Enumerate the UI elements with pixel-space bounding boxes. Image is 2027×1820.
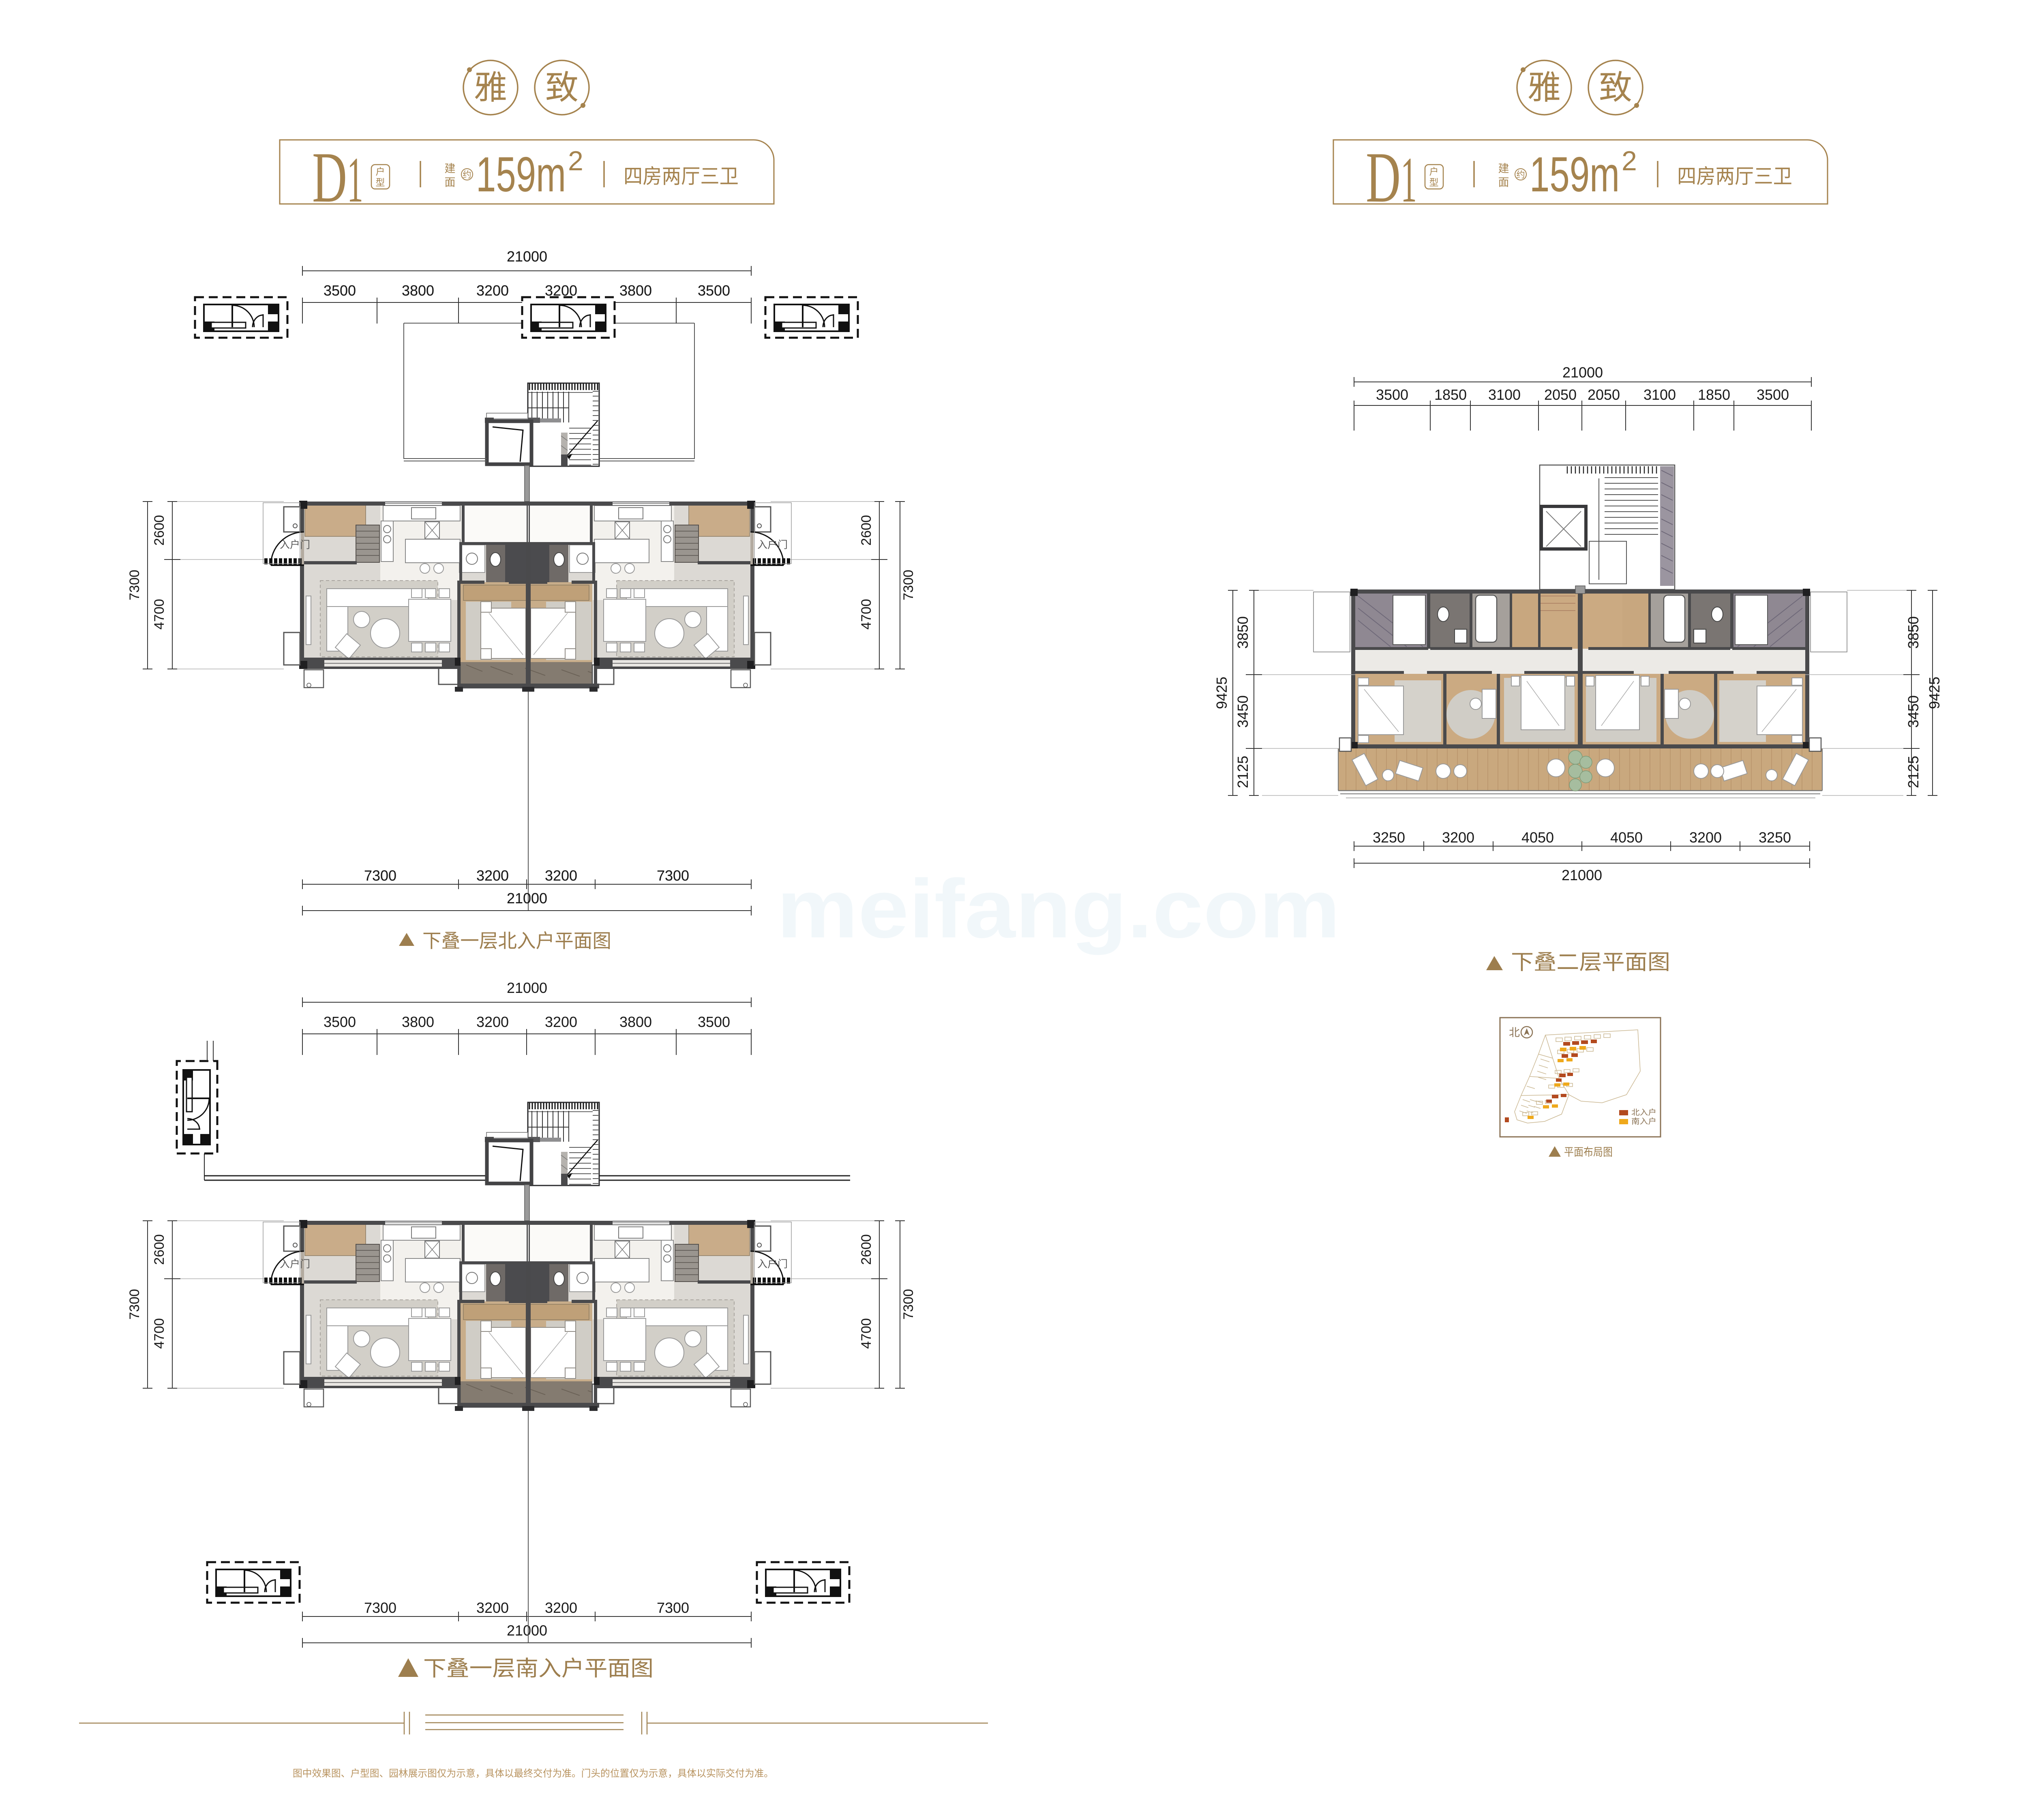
svg-text:入户门: 入户门 — [757, 539, 788, 551]
svg-text:1850: 1850 — [1434, 386, 1467, 403]
svg-text:入户门: 入户门 — [280, 539, 310, 551]
svg-text:3250: 3250 — [1759, 829, 1791, 846]
svg-text:四房两厅三卫: 四房两厅三卫 — [624, 165, 739, 188]
svg-text:159m: 159m — [476, 147, 566, 202]
svg-text:3850: 3850 — [1234, 616, 1251, 649]
svg-text:1850: 1850 — [1698, 386, 1730, 403]
svg-text:21000: 21000 — [1562, 364, 1603, 381]
svg-text:meifang.com: meifang.com — [777, 862, 1340, 955]
svg-text:3200: 3200 — [1689, 829, 1722, 846]
svg-text:4700: 4700 — [152, 599, 167, 630]
svg-text:型: 型 — [376, 177, 385, 188]
svg-text:雅: 雅 — [474, 69, 507, 106]
svg-text:4700: 4700 — [859, 599, 874, 630]
svg-text:下叠二层平面图: 下叠二层平面图 — [1511, 951, 1670, 974]
svg-text:3200: 3200 — [1442, 829, 1474, 846]
svg-text:4050: 4050 — [1610, 829, 1643, 846]
svg-text:1: 1 — [347, 144, 363, 216]
svg-text:致: 致 — [545, 69, 579, 106]
svg-text:2600: 2600 — [859, 515, 874, 546]
svg-text:南入户: 南入户 — [1631, 1117, 1656, 1126]
svg-text:2050: 2050 — [1588, 386, 1620, 403]
svg-text:2125: 2125 — [1905, 756, 1922, 788]
svg-text:9425: 9425 — [1213, 677, 1230, 709]
svg-text:下叠一层北入户平面图: 下叠一层北入户平面图 — [422, 930, 611, 952]
svg-text:3250: 3250 — [1373, 829, 1405, 846]
svg-text:3450: 3450 — [1234, 695, 1251, 728]
svg-text:建: 建 — [445, 163, 456, 175]
svg-text:7300: 7300 — [901, 570, 916, 600]
svg-text:2125: 2125 — [1234, 756, 1251, 788]
svg-text:7300: 7300 — [127, 570, 142, 600]
svg-text:平面布局图: 平面布局图 — [1564, 1146, 1613, 1158]
svg-text:2600: 2600 — [152, 515, 167, 546]
svg-text:4050: 4050 — [1521, 829, 1554, 846]
svg-text:北: 北 — [1509, 1027, 1520, 1039]
svg-text:北入户: 北入户 — [1631, 1108, 1656, 1117]
svg-text:2: 2 — [568, 146, 583, 176]
svg-text:约: 约 — [463, 170, 471, 180]
svg-text:3100: 3100 — [1643, 386, 1676, 403]
svg-text:3100: 3100 — [1488, 386, 1521, 403]
svg-text:面: 面 — [445, 176, 456, 189]
svg-text:3850: 3850 — [1905, 616, 1922, 649]
svg-text:3500: 3500 — [1376, 386, 1408, 403]
svg-text:21000: 21000 — [1562, 867, 1602, 883]
svg-text:户: 户 — [376, 166, 385, 177]
svg-text:D: D — [312, 137, 347, 217]
svg-text:9425: 9425 — [1926, 677, 1943, 709]
svg-text:下叠一层南入户平面图: 下叠一层南入户平面图 — [423, 1657, 654, 1681]
svg-text:图中效果图、户型图、园林展示图仅为示意，具体以最终交付为准。: 图中效果图、户型图、园林展示图仅为示意，具体以最终交付为准。门头的位置仅为示意，… — [293, 1768, 774, 1779]
svg-text:3500: 3500 — [1757, 386, 1789, 403]
svg-text:2050: 2050 — [1544, 386, 1577, 403]
svg-text:3450: 3450 — [1905, 695, 1922, 728]
